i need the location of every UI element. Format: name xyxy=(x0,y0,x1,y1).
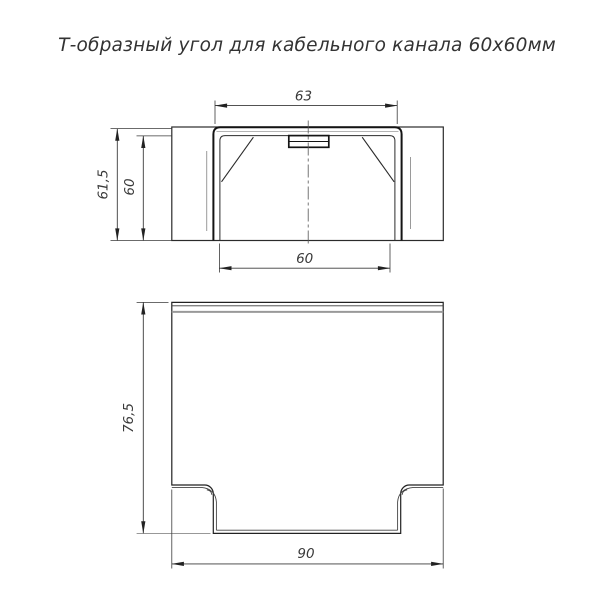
dim-label-inner-height: 60 xyxy=(122,178,138,195)
dim-label-top-width: 63 xyxy=(295,89,312,105)
drawing-sheet: Т-образный угол для кабельного канала 60… xyxy=(0,0,600,600)
technical-drawing: Т-образный угол для кабельного канала 60… xyxy=(0,0,600,600)
dim-label-plan-width: 90 xyxy=(297,546,314,562)
dim-label-plan-height: 76,5 xyxy=(121,403,137,433)
dim-label-bottom-width: 60 xyxy=(296,251,313,267)
dim-label-outer-height: 61,5 xyxy=(96,169,112,199)
drawing-title: Т-образный угол для кабельного канала 60… xyxy=(58,35,556,56)
front-dim-inner-height: 60 xyxy=(122,136,172,241)
front-dim-bottom-width: 60 xyxy=(219,244,390,273)
plan-outline xyxy=(172,302,443,533)
plan-view: 76,5 90 xyxy=(121,302,443,568)
front-view: 63 61,5 60 60 xyxy=(96,89,444,273)
front-dim-top-width: 63 xyxy=(215,89,397,125)
